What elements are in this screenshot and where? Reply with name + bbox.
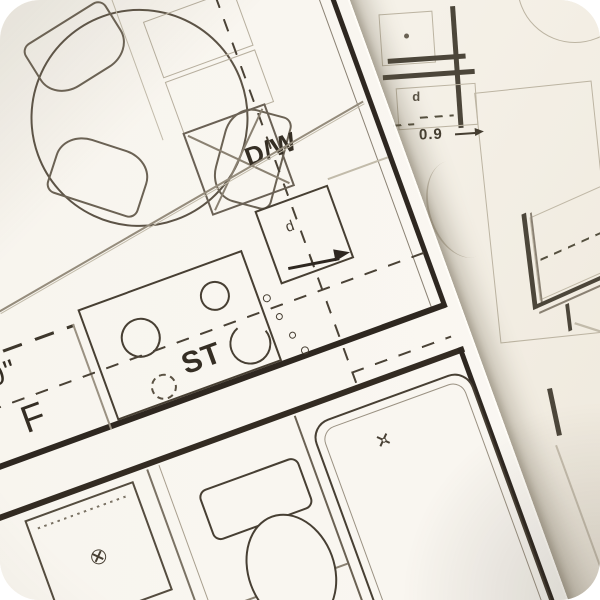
dimension-label: '0" <box>0 353 22 397</box>
back-dimension-arrow-line <box>455 132 477 136</box>
stove-knob <box>262 293 272 303</box>
fridge-label: F <box>15 394 52 443</box>
back-dimension-arrowhead <box>475 127 485 136</box>
stove-knob <box>275 312 284 321</box>
back-cabinet-label: d <box>412 89 421 104</box>
shower-drain-icon <box>89 547 108 566</box>
back-sheet-edge-line <box>555 445 600 600</box>
counter-return-line <box>327 156 388 179</box>
back-wall-segment <box>383 69 475 80</box>
back-dimension-label: 0.9 <box>419 126 443 144</box>
back-wall-stub <box>565 303 572 332</box>
back-diagonal-line <box>574 322 600 347</box>
back-table-outline <box>517 0 600 43</box>
stove-knob <box>288 331 297 340</box>
blueprint-photo: d 0.9 <box>0 0 600 600</box>
